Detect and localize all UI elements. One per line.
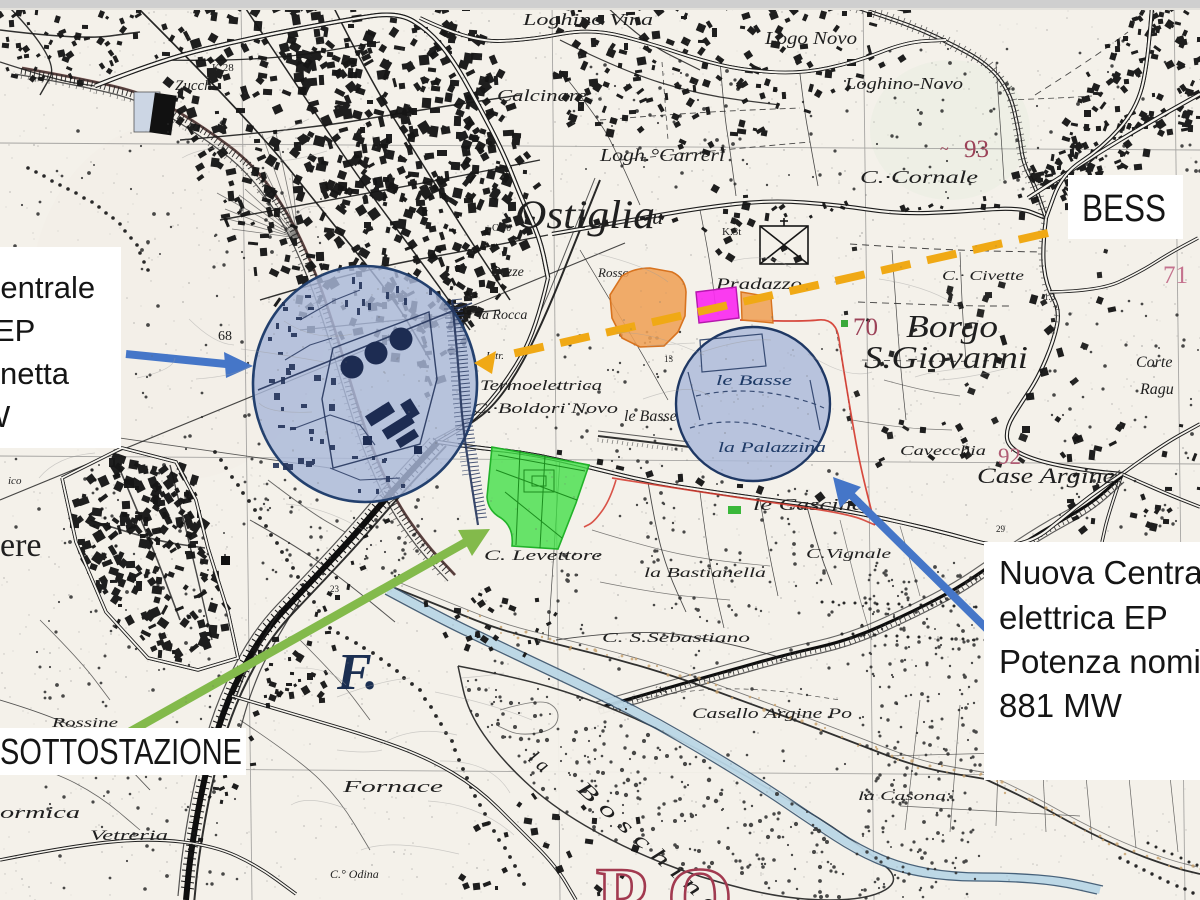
svg-text:ere: ere xyxy=(0,527,42,564)
svg-text:Loghino-Novo: Loghino-Novo xyxy=(844,74,963,93)
svg-text:Calcinare: Calcinare xyxy=(497,86,588,105)
svg-text:la Palazzina: la Palazzina xyxy=(718,440,826,456)
svg-text:´14: ´14 xyxy=(655,685,667,695)
svg-text:F.: F. xyxy=(336,644,378,701)
svg-text:Ostiglia: Ostiglia xyxy=(515,192,655,237)
svg-text:u: u xyxy=(652,204,663,229)
svg-text:Logo Novo: Logo Novo xyxy=(764,28,857,48)
svg-text:la Casona: la Casona xyxy=(858,788,947,803)
svg-text:Logh.°Carreri: Logh.°Carreri xyxy=(599,145,725,165)
svg-text:ico: ico xyxy=(8,475,22,487)
svg-text:Casello Argine Po: Casello Argine Po xyxy=(692,706,853,722)
svg-text:93: 93 xyxy=(964,136,989,163)
svg-text:C.·Cornale: C.·Cornale xyxy=(860,167,978,187)
svg-text:Ragu: Ragu xyxy=(1139,381,1174,398)
svg-text:elettrica EP: elettrica EP xyxy=(999,599,1168,636)
svg-text:C.° Odina: C.° Odina xyxy=(330,867,379,881)
svg-text:le Basse: le Basse xyxy=(624,408,677,425)
svg-text:Cavecchia: Cavecchia xyxy=(900,444,986,459)
svg-text:29: 29 xyxy=(996,524,1006,534)
svg-text:W: W xyxy=(0,399,11,434)
svg-text:Corte: Corte xyxy=(1136,354,1172,371)
svg-text:Zucch.: Zucch. xyxy=(175,78,215,94)
svg-text:1.3: 1.3 xyxy=(1044,292,1056,302)
svg-text:Loghino Vina: Loghino Vina xyxy=(522,10,653,29)
svg-text:Centrale: Centrale xyxy=(0,270,95,305)
svg-text:71: 71 xyxy=(1163,262,1188,289)
svg-text:K.3t: K.3t xyxy=(722,226,741,238)
svg-text:Vetreria: Vetreria xyxy=(90,828,168,844)
svg-text:la Rocca: la Rocca xyxy=(478,308,527,323)
svg-text:Potenza nominale: Potenza nominale xyxy=(999,643,1200,680)
svg-text:C.10: C.10 xyxy=(492,223,511,234)
svg-text:881 MW: 881 MW xyxy=(999,687,1123,724)
svg-text:SOTTOSTAZIONE: SOTTOSTAZIONE xyxy=(0,731,242,772)
svg-text:EP: EP xyxy=(0,313,35,348)
svg-text:netta: netta xyxy=(0,356,70,391)
svg-text:ormica: ormica xyxy=(0,803,80,822)
svg-text:Termoelettrica: Termoelettrica xyxy=(480,378,602,394)
svg-text:C.Vignale: C.Vignale xyxy=(806,547,891,562)
svg-text:la Bastianella: la Bastianella xyxy=(644,566,766,581)
svg-text:C.· Civette: C.· Civette xyxy=(942,269,1024,284)
svg-text:92: 92 xyxy=(998,444,1021,469)
svg-text:Nuova Centrale: Nuova Centrale xyxy=(999,554,1200,591)
svg-text:Fornace: Fornace xyxy=(341,777,444,796)
svg-text:C. S.Sebastiano: C. S.Sebastiano xyxy=(602,631,750,646)
svg-text:23: 23 xyxy=(330,584,340,594)
svg-text:BESS: BESS xyxy=(1082,188,1166,230)
svg-text:S.Giovanni: S.Giovanni xyxy=(864,339,1028,375)
svg-text:Pezze: Pezze xyxy=(491,265,524,280)
svg-text:C.·Boldori Novo: C.·Boldori Novo xyxy=(472,401,619,417)
svg-text:le Basse: le Basse xyxy=(716,373,793,389)
svg-text:C. Levettore: C. Levettore xyxy=(484,548,603,564)
svg-text:70: 70 xyxy=(853,314,878,341)
svg-text:PO: PO xyxy=(596,851,753,900)
svg-text:K.28: K.28 xyxy=(212,62,234,74)
svg-text:~: ~ xyxy=(940,141,949,158)
